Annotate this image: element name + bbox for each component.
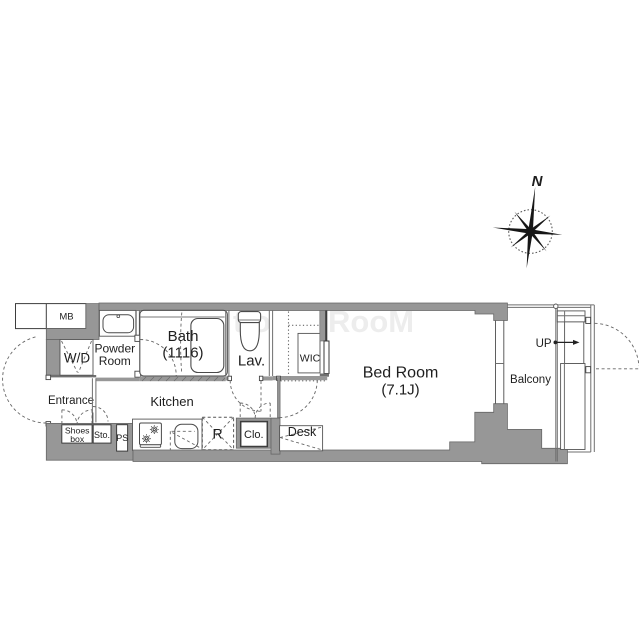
svg-text:(1116): (1116) — [162, 345, 203, 362]
svg-text:box: box — [70, 434, 85, 444]
svg-text:Bath: Bath — [168, 328, 199, 345]
svg-text:Bed Room: Bed Room — [363, 365, 439, 382]
svg-text:(7.1J): (7.1J) — [381, 382, 419, 399]
svg-text:UP: UP — [536, 338, 552, 350]
svg-text:R: R — [213, 425, 223, 441]
svg-text:Balcony: Balcony — [510, 374, 551, 386]
svg-text:Clo.: Clo. — [244, 429, 264, 441]
svg-text:WIC: WIC — [300, 353, 321, 365]
svg-text:Kitchen: Kitchen — [150, 394, 193, 409]
svg-text:W/D: W/D — [64, 351, 90, 366]
svg-text:Room: Room — [99, 354, 131, 368]
svg-text:PS: PS — [116, 433, 128, 443]
svg-text:Entrance: Entrance — [48, 395, 94, 407]
svg-text:Desk: Desk — [288, 425, 317, 439]
svg-text:N: N — [532, 173, 544, 190]
svg-text:Lav.: Lav. — [238, 353, 265, 370]
svg-text:Sto.: Sto. — [94, 430, 110, 440]
svg-text:MB: MB — [59, 312, 73, 323]
